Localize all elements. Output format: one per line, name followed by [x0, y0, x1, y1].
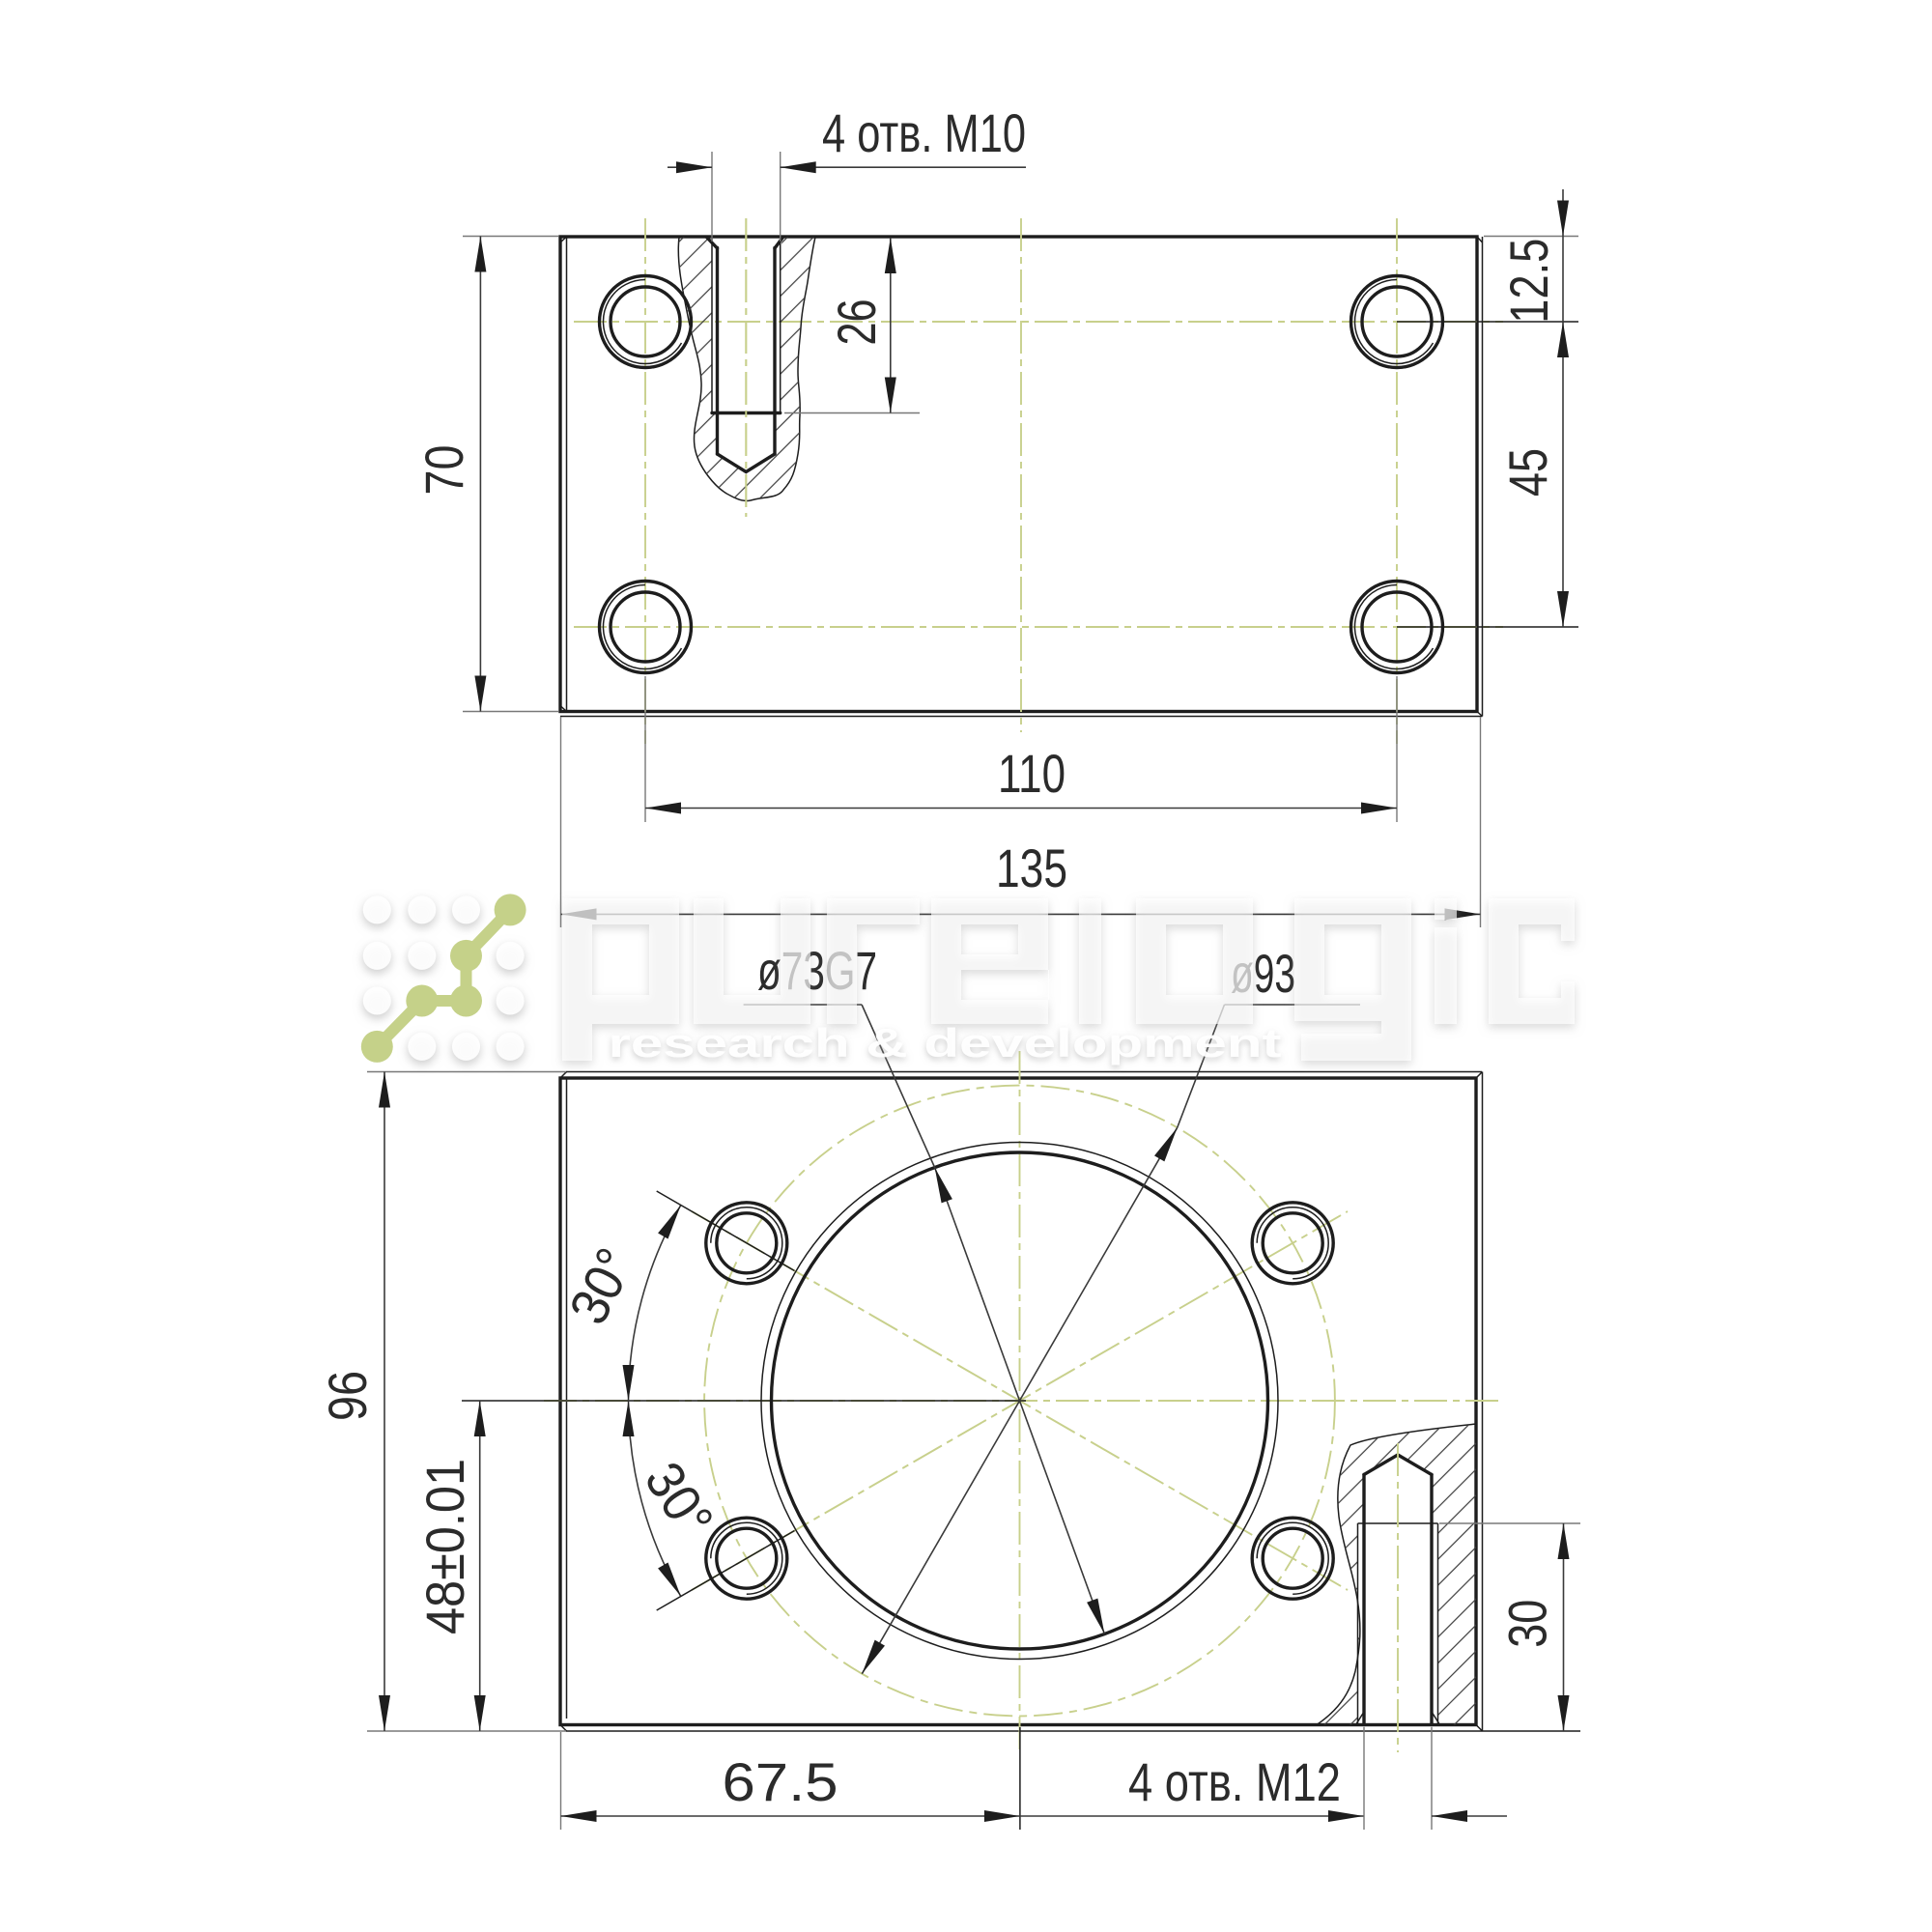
svg-text:67.5: 67.5 — [723, 1751, 838, 1812]
svg-text:96: 96 — [317, 1371, 378, 1421]
svg-text:135: 135 — [996, 838, 1067, 898]
svg-text:ø73G7: ø73G7 — [757, 940, 877, 1001]
svg-text:4 отв. M10: 4 отв. M10 — [822, 102, 1026, 163]
svg-text:48±0.01: 48±0.01 — [414, 1459, 475, 1634]
svg-text:4 отв. M12: 4 отв. M12 — [1128, 1751, 1341, 1812]
svg-text:70: 70 — [413, 445, 474, 496]
svg-text:30: 30 — [1497, 1600, 1558, 1648]
svg-text:26: 26 — [826, 299, 887, 346]
svg-text:110: 110 — [998, 743, 1065, 804]
svg-text:45: 45 — [1497, 448, 1558, 497]
svg-text:research & development: research & development — [609, 1020, 1282, 1065]
svg-text:12.5: 12.5 — [1498, 239, 1559, 324]
